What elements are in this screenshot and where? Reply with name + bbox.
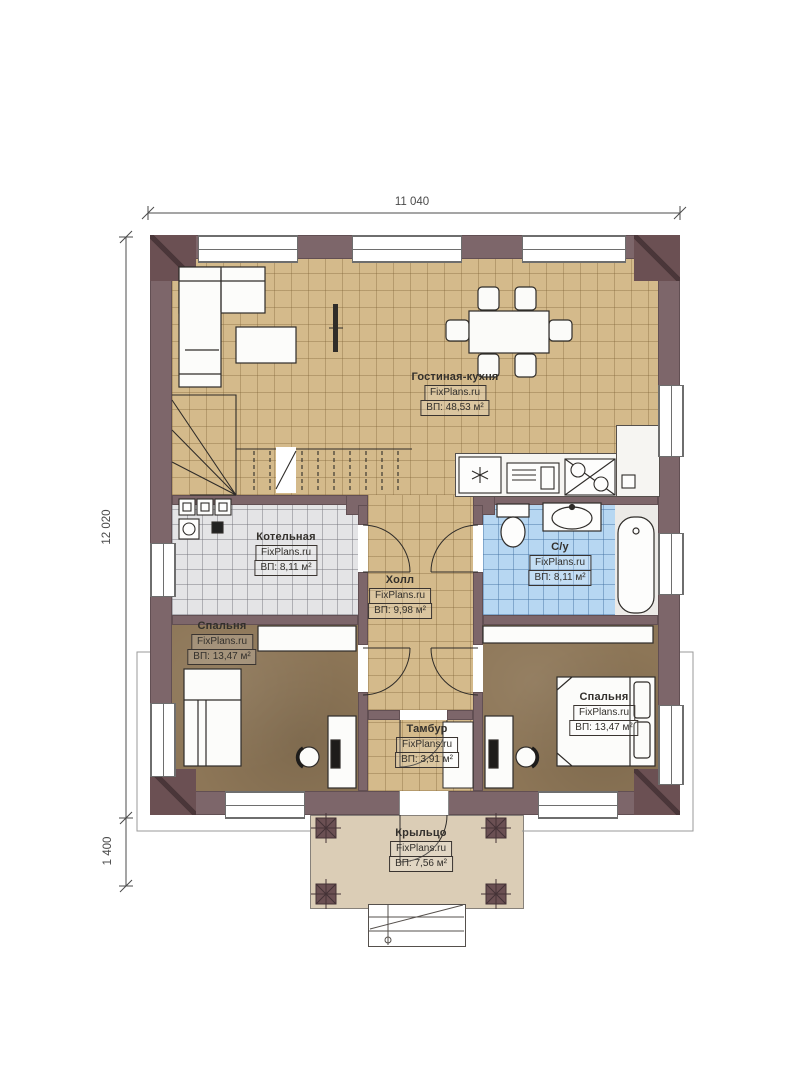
room-area: ВП: 7,56 м² bbox=[389, 856, 453, 872]
coffee-table bbox=[236, 327, 296, 363]
watermark: FixPlans.ru bbox=[396, 737, 458, 753]
watermark: FixPlans.ru bbox=[255, 545, 317, 561]
room-area: ВП: 13,47 м² bbox=[187, 649, 256, 665]
room-label-bedroom-left: Спальня FixPlans.ru ВП: 13,47 м² bbox=[187, 620, 256, 665]
dining-table bbox=[469, 311, 549, 353]
watermark: FixPlans.ru bbox=[529, 555, 591, 571]
door-bedroom-right bbox=[431, 648, 478, 695]
boiler-equipment bbox=[179, 499, 231, 539]
chair bbox=[446, 320, 469, 341]
kitchen-sink bbox=[622, 475, 635, 488]
wardrobe bbox=[483, 626, 653, 643]
dimension-left: 12 020 bbox=[101, 492, 113, 562]
column bbox=[311, 813, 341, 843]
tv-stand bbox=[329, 304, 343, 352]
toilet-tank bbox=[497, 504, 529, 517]
sink bbox=[552, 507, 592, 529]
room-label-bathroom: С/у FixPlans.ru ВП: 8,11 м² bbox=[528, 541, 591, 586]
dimension-top: 11 040 bbox=[362, 196, 462, 208]
room-label-living-kitchen: Гостиная-кухня FixPlans.ru ВП: 48,53 м² bbox=[411, 371, 498, 416]
watermark: FixPlans.ru bbox=[369, 588, 431, 604]
room-area: ВП: 9,98 м² bbox=[368, 603, 432, 619]
room-name: Тамбур bbox=[395, 723, 459, 735]
column bbox=[481, 813, 511, 843]
monitor bbox=[331, 740, 340, 768]
watermark: FixPlans.ru bbox=[191, 634, 253, 650]
bathtub bbox=[618, 517, 654, 613]
room-area: ВП: 8,11 м² bbox=[528, 570, 591, 586]
chair bbox=[515, 354, 536, 377]
dimension-bottom-left: 1 400 bbox=[102, 816, 114, 886]
room-label-hall: Холл FixPlans.ru ВП: 9,98 м² bbox=[368, 574, 432, 619]
dining-set bbox=[446, 287, 572, 377]
column bbox=[311, 879, 341, 909]
monitor bbox=[489, 740, 498, 768]
porch-step-lines bbox=[368, 904, 464, 945]
watermark: FixPlans.ru bbox=[424, 385, 486, 401]
room-label-tambour: Тамбур FixPlans.ru ВП: 3,91 м² bbox=[395, 723, 459, 768]
washer bbox=[179, 519, 199, 539]
room-area: ВП: 48,53 м² bbox=[420, 400, 489, 416]
chair bbox=[549, 320, 572, 341]
room-name: Спальня bbox=[187, 620, 256, 632]
room-name: Спальня bbox=[569, 691, 638, 703]
staircase bbox=[172, 395, 412, 495]
boiler-unit bbox=[212, 522, 223, 533]
room-area: ВП: 3,91 м² bbox=[395, 752, 459, 768]
chair bbox=[515, 287, 536, 310]
room-name: Холл bbox=[368, 574, 432, 586]
column bbox=[481, 879, 511, 909]
plan-linework bbox=[0, 0, 792, 1080]
watermark: FixPlans.ru bbox=[390, 841, 452, 857]
room-area: ВП: 8,11 м² bbox=[254, 560, 317, 576]
watermark: FixPlans.ru bbox=[573, 705, 635, 721]
door-bedroom-left bbox=[363, 648, 410, 695]
room-name: С/у bbox=[528, 541, 591, 553]
room-name: Гостиная-кухня bbox=[411, 371, 498, 383]
door-boiler bbox=[363, 525, 410, 572]
room-label-bedroom-right: Спальня FixPlans.ru ВП: 13,47 м² bbox=[569, 691, 638, 736]
floor-plan: 11 040 12 020 1 400 Гостиная-кухня FixPl… bbox=[0, 0, 792, 1080]
wardrobe bbox=[258, 626, 356, 651]
room-area: ВП: 13,47 м² bbox=[569, 720, 638, 736]
room-name: Крыльцо bbox=[389, 827, 453, 839]
room-name: Котельная bbox=[254, 531, 317, 543]
door-bathroom bbox=[431, 525, 478, 572]
chair bbox=[478, 287, 499, 310]
kitchen-appliances bbox=[459, 457, 635, 495]
bed bbox=[184, 669, 241, 766]
room-label-porch: Крыльцо FixPlans.ru ВП: 7,56 м² bbox=[389, 827, 453, 872]
room-label-boiler: Котельная FixPlans.ru ВП: 8,11 м² bbox=[254, 531, 317, 576]
toilet bbox=[501, 517, 525, 547]
